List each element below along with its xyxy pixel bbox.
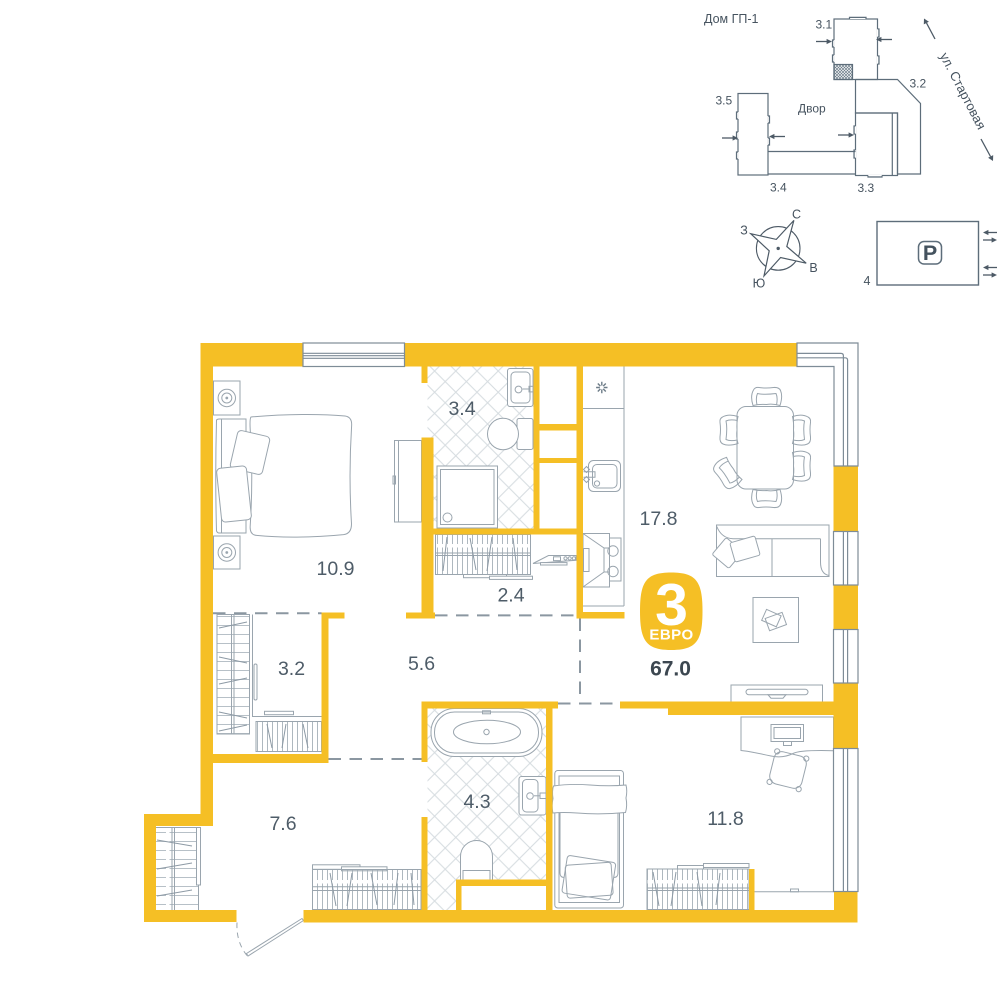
svg-text:3.4: 3.4 xyxy=(448,398,475,420)
svg-text:Дом ГП-1: Дом ГП-1 xyxy=(704,12,759,26)
svg-text:Двор: Двор xyxy=(798,102,826,116)
svg-text:З: З xyxy=(740,224,748,238)
svg-text:P: P xyxy=(923,241,937,265)
svg-text:10.9: 10.9 xyxy=(317,558,355,580)
svg-text:67.0: 67.0 xyxy=(650,658,691,681)
svg-text:3.1: 3.1 xyxy=(816,18,833,32)
svg-text:В: В xyxy=(809,261,817,275)
svg-text:Ю: Ю xyxy=(753,277,766,291)
svg-text:4: 4 xyxy=(864,274,871,288)
svg-text:3.4: 3.4 xyxy=(770,181,787,195)
svg-text:2.4: 2.4 xyxy=(497,585,524,607)
svg-text:5.6: 5.6 xyxy=(408,653,435,675)
svg-text:7.6: 7.6 xyxy=(269,813,296,835)
svg-text:4.3: 4.3 xyxy=(463,791,490,813)
svg-text:ЕВРО: ЕВРО xyxy=(649,627,693,644)
svg-text:3.5: 3.5 xyxy=(716,94,733,108)
svg-text:3.2: 3.2 xyxy=(278,658,305,680)
svg-text:3.2: 3.2 xyxy=(910,77,927,91)
svg-text:17.8: 17.8 xyxy=(640,508,678,530)
svg-text:11.8: 11.8 xyxy=(707,808,744,830)
svg-text:3.3: 3.3 xyxy=(858,181,875,195)
svg-text:С: С xyxy=(792,208,801,222)
